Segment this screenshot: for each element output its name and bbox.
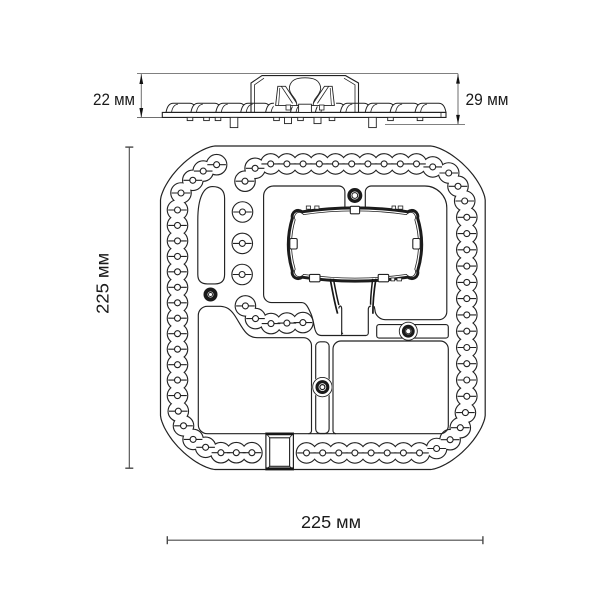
svg-text:225 мм: 225 мм xyxy=(301,512,361,532)
svg-text:22 мм: 22 мм xyxy=(93,90,135,109)
svg-text:29 мм: 29 мм xyxy=(466,90,509,109)
svg-text:225 мм: 225 мм xyxy=(93,253,113,314)
